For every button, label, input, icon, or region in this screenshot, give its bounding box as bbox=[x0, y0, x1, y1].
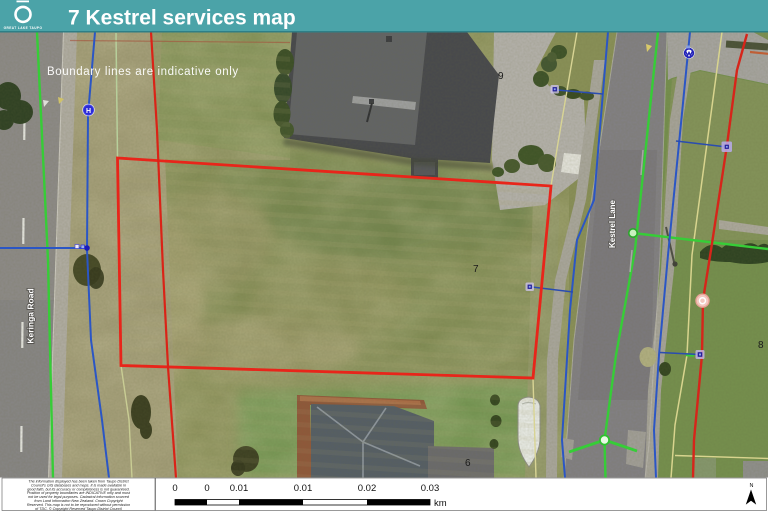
svg-text:0: 0 bbox=[204, 483, 209, 494]
svg-text:N: N bbox=[750, 483, 754, 489]
svg-text:H: H bbox=[86, 108, 91, 115]
svg-text:7 Kestrel services map: 7 Kestrel services map bbox=[68, 7, 296, 30]
svg-text:km: km bbox=[434, 498, 447, 509]
svg-text:Boundary lines are indicative: Boundary lines are indicative only bbox=[47, 66, 239, 78]
svg-text:0.02: 0.02 bbox=[358, 483, 377, 494]
svg-text:Keringa Road: Keringa Road bbox=[25, 288, 35, 343]
svg-text:0.03: 0.03 bbox=[421, 483, 440, 494]
svg-text:7: 7 bbox=[473, 264, 479, 275]
svg-text:8: 8 bbox=[758, 340, 764, 351]
svg-text:9: 9 bbox=[498, 71, 504, 82]
svg-text:0.01: 0.01 bbox=[294, 483, 313, 494]
svg-text:of TDC. © Copyright Reserved T: of TDC. © Copyright Reserved Taupo Distr… bbox=[35, 507, 122, 511]
svg-text:0.01: 0.01 bbox=[230, 483, 249, 494]
svg-text:6: 6 bbox=[465, 458, 471, 469]
svg-text:GREAT LAKE TAUPO: GREAT LAKE TAUPO bbox=[4, 26, 43, 30]
svg-text:Kestrel Lane: Kestrel Lane bbox=[608, 199, 617, 248]
svg-text:0: 0 bbox=[172, 483, 177, 494]
